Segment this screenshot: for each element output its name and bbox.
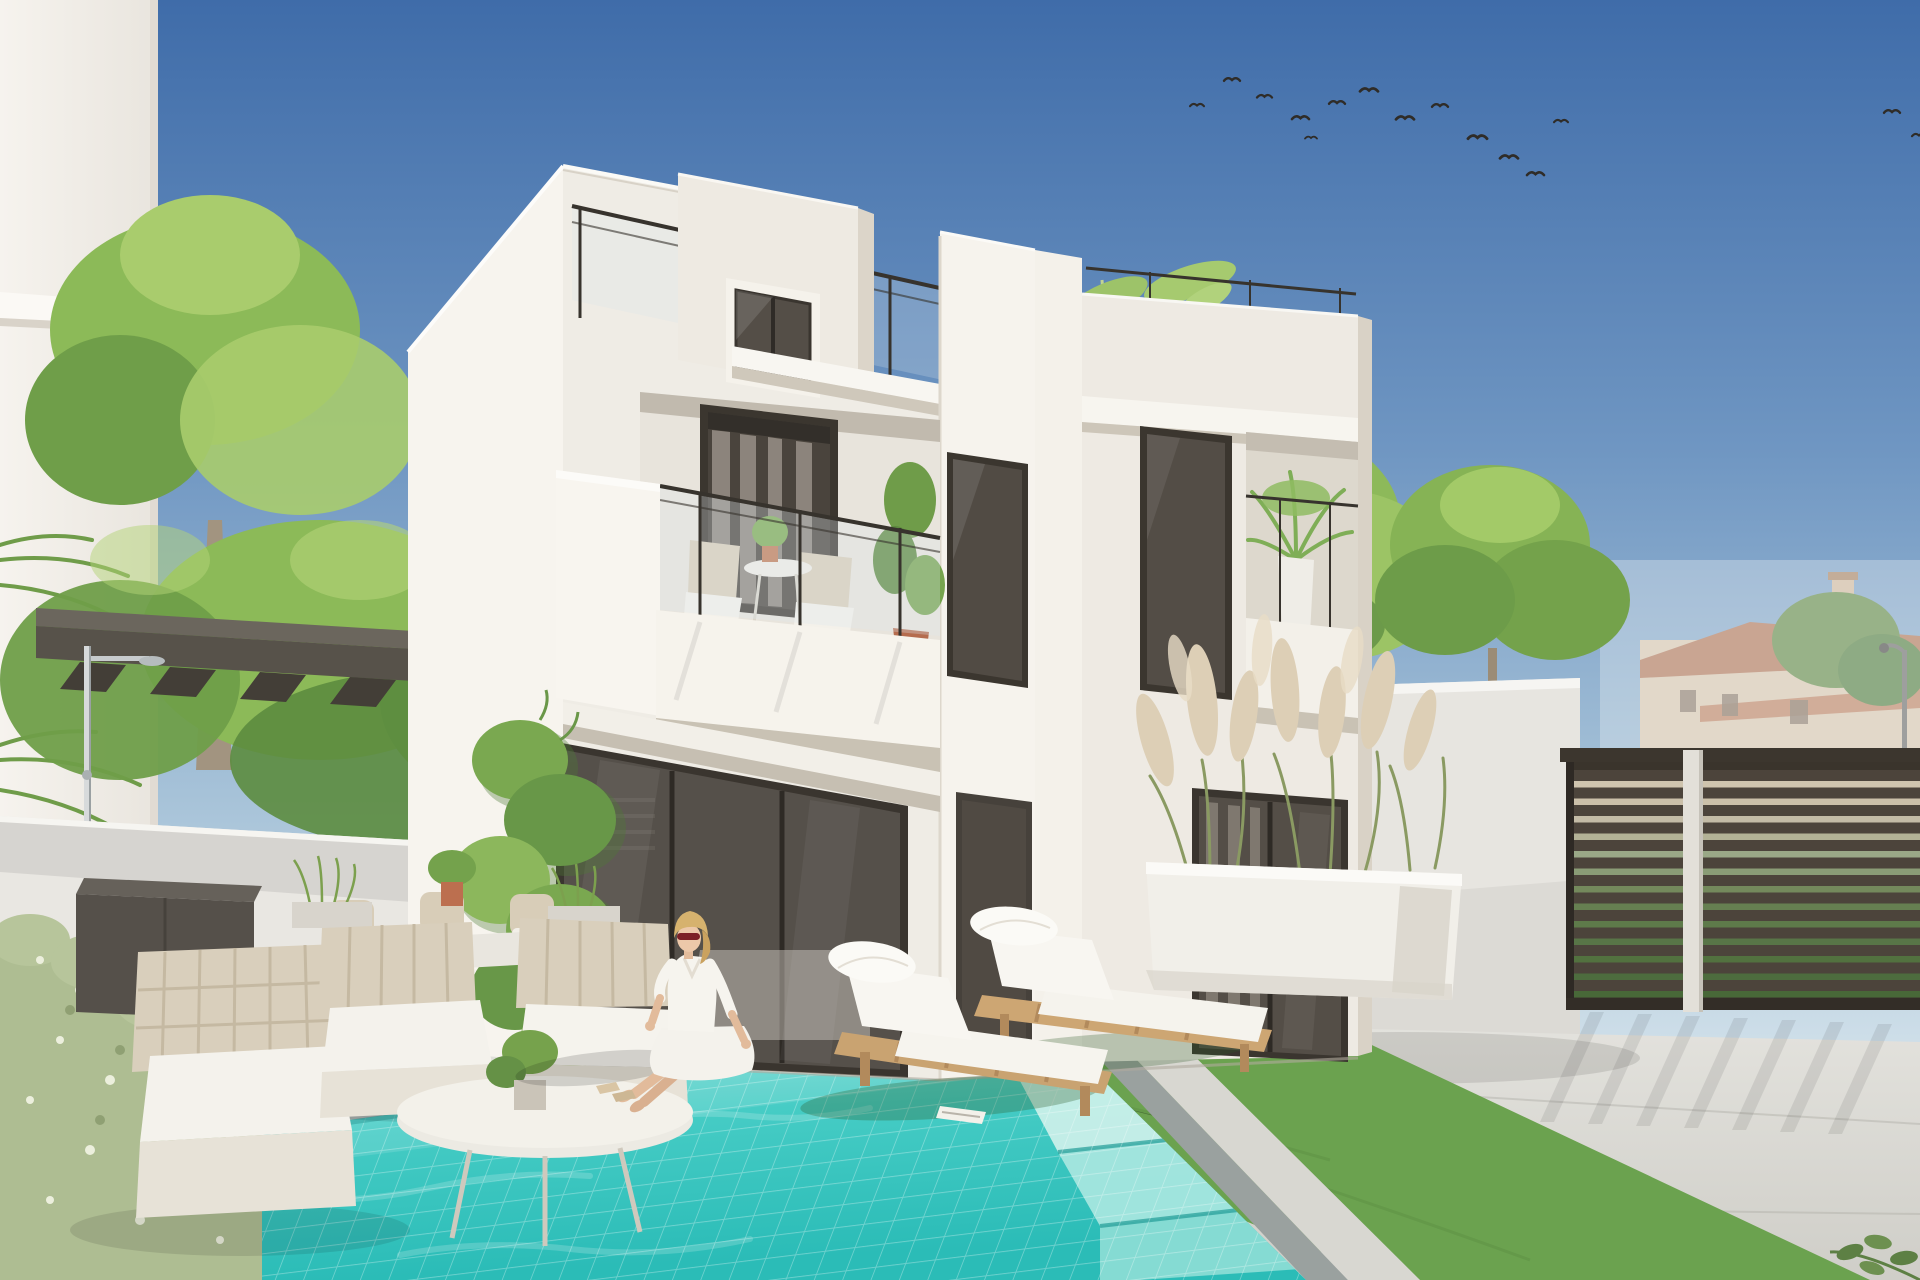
fence-gap xyxy=(1572,869,1920,876)
fence-slat xyxy=(1572,858,1920,869)
fence-gap xyxy=(1572,886,1920,893)
fence-slat xyxy=(1572,805,1920,816)
fence-slat xyxy=(1572,823,1920,834)
balcony-pillar xyxy=(556,470,660,716)
fence-slat xyxy=(1572,963,1920,974)
fence-slat xyxy=(1572,788,1920,799)
fence-gap xyxy=(1572,834,1920,841)
fence-gap xyxy=(1572,921,1920,928)
fence-slat xyxy=(1572,945,1920,956)
fence-gap xyxy=(1572,799,1920,806)
fence-gap xyxy=(1572,904,1920,911)
fence-gap xyxy=(1572,991,1920,998)
fence-slat xyxy=(1572,893,1920,904)
fence-slat xyxy=(1572,980,1920,991)
fence-slat xyxy=(1572,770,1920,781)
fence-gap xyxy=(1572,851,1920,858)
sunglasses xyxy=(677,933,700,940)
fence-gap xyxy=(1572,939,1920,946)
fence-gap xyxy=(1572,781,1920,788)
fence-slat xyxy=(1572,875,1920,886)
fence-slat xyxy=(1572,840,1920,851)
fence-gap xyxy=(1572,974,1920,981)
fence-gap xyxy=(1572,956,1920,963)
fence-gap xyxy=(1572,816,1920,823)
fence-slat xyxy=(1572,928,1920,939)
villa-render xyxy=(0,0,1920,1280)
fence-slat xyxy=(1572,910,1920,921)
junction-window xyxy=(947,452,1028,688)
slat-fence xyxy=(1560,748,1920,1012)
